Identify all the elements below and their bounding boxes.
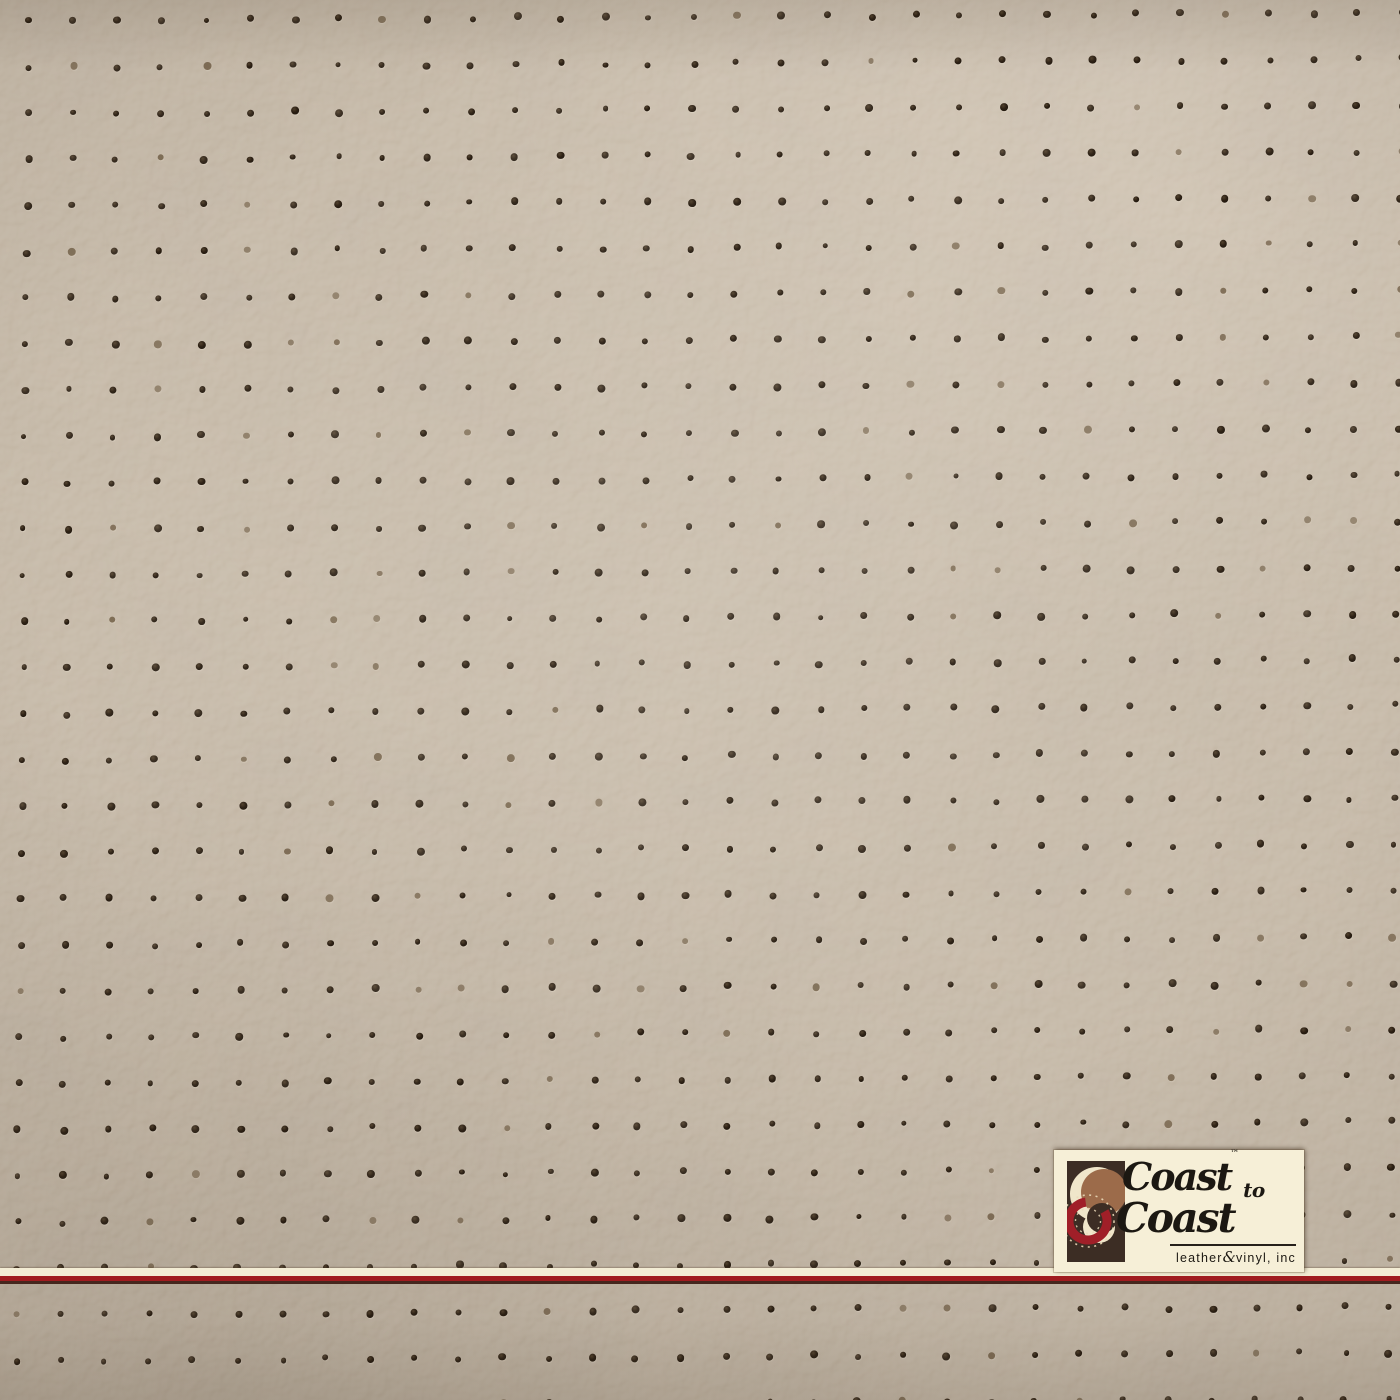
perforation-dot: [593, 985, 601, 993]
perforation-dot: [951, 426, 959, 434]
perforation-dot: [324, 1170, 332, 1178]
perforation-dot: [1124, 983, 1130, 989]
perforation-dot: [824, 150, 830, 156]
perforation-dot: [157, 64, 163, 70]
perforation-dot: [334, 246, 340, 252]
perforation-dot: [688, 199, 695, 206]
perforation-dot: [766, 1353, 773, 1360]
perforation-dot: [468, 109, 475, 116]
perforation-dot: [152, 663, 160, 671]
perforation-dot: [815, 752, 822, 759]
perforation-dot: [16, 1218, 22, 1224]
perforation-dot: [602, 12, 610, 20]
perforation-dot: [411, 1309, 418, 1316]
perforation-dot: [1388, 1027, 1395, 1034]
perforation-dot: [1266, 147, 1274, 155]
perforation-dot: [1038, 703, 1046, 711]
perforation-dot: [188, 1356, 195, 1363]
perforation-dot: [459, 893, 465, 899]
perforation-dot: [823, 200, 829, 206]
perforation-dot: [1039, 474, 1045, 480]
perforation-dot: [20, 710, 27, 717]
perforation-dot: [514, 12, 522, 20]
perforation-dot: [554, 337, 561, 344]
perforation-dot: [283, 707, 290, 714]
perforation-dot: [156, 295, 162, 301]
perforation-dot: [288, 339, 294, 345]
perforation-dot: [236, 1033, 244, 1041]
perforation-dot: [503, 940, 509, 946]
perforation-dot: [456, 1309, 462, 1315]
perforation-dot: [856, 1214, 862, 1220]
perforation-dot: [67, 293, 74, 300]
perforation-dot: [506, 709, 512, 715]
perforation-dot: [677, 1214, 685, 1222]
perforation-dot: [374, 753, 382, 761]
perforation-dot: [989, 1122, 995, 1128]
perforation-dot: [552, 706, 558, 712]
perforation-dot: [1395, 379, 1400, 387]
perforation-dot: [777, 12, 785, 20]
perforation-dot: [557, 16, 565, 24]
perforation-dot: [247, 110, 254, 117]
perforation-dot: [369, 1217, 376, 1224]
perforation-dot: [146, 1171, 153, 1178]
perforation-dot: [332, 292, 339, 299]
perforation-dot: [592, 1077, 599, 1084]
perforation-dot: [1350, 380, 1358, 388]
perforation-dot: [551, 523, 557, 529]
perforation-dot: [58, 1311, 64, 1317]
perforation-dot: [146, 1311, 152, 1317]
perforation-dot: [199, 386, 206, 393]
perforation-dot: [198, 341, 206, 349]
perforation-dot: [691, 61, 698, 68]
perforation-dot: [237, 939, 244, 946]
perforation-dot: [458, 984, 465, 991]
perforation-dot: [774, 383, 782, 391]
perforation-dot: [642, 338, 648, 344]
perforation-dot: [505, 802, 511, 808]
perforation-dot: [678, 1077, 685, 1084]
perforation-dot: [1172, 518, 1179, 525]
perforation-dot: [420, 245, 427, 252]
perforation-dot: [1165, 1306, 1172, 1313]
perforation-dot: [723, 1030, 730, 1037]
perforation-dot: [865, 104, 873, 112]
perforation-dot: [1168, 1074, 1175, 1081]
perforation-dot: [369, 1032, 375, 1038]
perforation-dot: [376, 340, 383, 347]
perforation-dot: [1385, 1304, 1391, 1310]
perforation-dot: [598, 384, 606, 392]
perforation-dot: [237, 986, 244, 993]
perforation-dot: [548, 1168, 554, 1174]
perforation-dot: [1170, 844, 1176, 850]
perforation-dot: [1129, 381, 1135, 387]
perforation-dot: [243, 432, 250, 439]
perforation-dot: [509, 244, 516, 251]
tagline-ampersand: &: [1223, 1248, 1236, 1266]
perforation-dot: [943, 1120, 951, 1128]
perforation-dot: [367, 1170, 375, 1178]
perforation-dot: [1175, 194, 1182, 201]
perforation-dot: [191, 1217, 197, 1223]
perforation-dot: [600, 199, 606, 205]
perforation-dot: [858, 982, 864, 988]
perforation-dot: [25, 17, 31, 23]
perforation-dot: [1175, 240, 1183, 248]
perforation-dot: [196, 894, 203, 901]
perforation-dot: [372, 984, 380, 992]
perforation-dot: [1124, 1026, 1130, 1032]
perforation-dot: [1296, 1348, 1302, 1354]
perforation-dot: [950, 613, 956, 619]
perforation-dot: [731, 568, 738, 575]
perforation-dot: [685, 568, 691, 574]
perforation-dot: [599, 430, 605, 436]
perforation-dot: [636, 939, 643, 946]
perforation-dot: [1267, 58, 1273, 64]
perforation-dot: [598, 478, 605, 485]
perforation-dot: [1254, 1119, 1261, 1126]
perforation-dot: [543, 1308, 551, 1316]
perforation-dot: [953, 473, 959, 479]
perforation-dot: [1042, 336, 1049, 343]
perforation-dot: [1257, 887, 1265, 895]
perforation-dot: [416, 1033, 423, 1040]
perforation-dot: [424, 200, 431, 207]
perforation-dot: [818, 428, 826, 436]
perforation-dot: [147, 1081, 153, 1087]
perforation-dot: [1258, 795, 1264, 801]
perforation-dot: [334, 200, 342, 208]
perforation-dot: [589, 1354, 597, 1362]
perforation-dot: [1129, 612, 1135, 618]
perforation-dot: [771, 800, 778, 807]
perforation-dot: [956, 12, 962, 18]
perforation-dot: [638, 844, 645, 851]
perforation-dot: [60, 1127, 68, 1135]
perforation-dot: [18, 942, 25, 949]
perforation-dot: [810, 1350, 818, 1358]
perforation-dot: [549, 661, 556, 668]
perforation-dot: [952, 381, 959, 388]
perforation-dot: [245, 385, 252, 392]
perforation-dot: [1394, 471, 1400, 477]
perforation-dot: [198, 618, 205, 625]
perforation-dot: [691, 14, 697, 20]
perforation-dot: [70, 155, 77, 162]
perforation-dot: [101, 1359, 107, 1365]
perforation-dot: [734, 244, 741, 251]
perforation-dot: [912, 58, 918, 64]
perforation-dot: [1121, 1303, 1128, 1310]
perforation-dot: [1354, 150, 1360, 156]
perforation-dot: [729, 522, 735, 528]
perforation-dot: [1042, 244, 1048, 250]
perforation-dot: [1037, 795, 1045, 803]
perforation-dot: [987, 1213, 995, 1221]
perforation-dot: [639, 660, 645, 666]
perforation-dot: [816, 937, 823, 944]
perforation-dot: [69, 202, 76, 209]
perforation-dot: [64, 481, 71, 488]
perforation-dot: [1348, 565, 1355, 572]
perforation-dot: [375, 477, 381, 483]
perforation-dot: [238, 849, 244, 855]
perforation-dot: [988, 1353, 995, 1360]
perforation-dot: [148, 988, 154, 994]
perforation-dot: [457, 1078, 464, 1085]
perforation-dot: [244, 202, 250, 208]
perforation-dot: [1311, 56, 1318, 63]
perforation-dot: [1042, 149, 1050, 157]
perforation-dot: [1169, 795, 1176, 802]
perforation-dot: [1045, 57, 1053, 65]
perforation-dot: [196, 847, 203, 854]
perforation-dot: [154, 434, 162, 442]
perforation-dot: [1255, 1024, 1263, 1032]
perforation-dot: [545, 1123, 552, 1130]
perforation-dot: [465, 292, 471, 298]
perforation-dot: [69, 17, 76, 24]
perforation-dot: [59, 1081, 66, 1088]
perforation-dot: [643, 245, 650, 252]
perforation-dot: [1388, 1116, 1395, 1123]
perforation-dot: [1086, 336, 1092, 342]
perforation-dot: [861, 660, 867, 666]
perforation-dot: [463, 615, 470, 622]
perforation-dot: [58, 1357, 64, 1363]
perforation-dot: [1390, 981, 1397, 988]
perforation-dot: [1266, 240, 1272, 246]
perforation-dot: [113, 64, 121, 72]
perforation-dot: [60, 893, 67, 900]
perforation-dot: [1304, 795, 1312, 803]
perforation-dot: [466, 245, 473, 252]
perforation-dot: [1300, 1027, 1307, 1034]
perforation-dot: [240, 711, 246, 717]
perforation-dot: [63, 664, 71, 672]
perforation-dot: [1342, 1258, 1348, 1264]
perforation-dot: [420, 477, 427, 484]
perforation-dot: [954, 288, 961, 295]
perforation-dot: [768, 1029, 774, 1035]
perforation-dot: [724, 1077, 731, 1084]
perforation-dot: [23, 250, 31, 258]
perforation-dot: [67, 248, 75, 256]
perforation-dot: [196, 942, 202, 948]
brand-word-coast-2: Coast: [1116, 1194, 1235, 1242]
perforation-dot: [821, 289, 827, 295]
perforation-dot: [191, 1080, 198, 1087]
perforation-dot: [954, 197, 962, 205]
perforation-dot: [1256, 980, 1262, 986]
perforation-dot: [1263, 335, 1269, 341]
perforation-dot: [1176, 334, 1182, 340]
perforation-dot: [372, 849, 378, 855]
perforation-dot: [815, 661, 823, 669]
perforation-dot: [1169, 979, 1177, 987]
perforation-dot: [22, 294, 28, 300]
perforation-dot: [467, 63, 474, 70]
perforation-dot: [418, 524, 426, 532]
perforation-dot: [237, 1126, 245, 1134]
perforation-dot: [724, 982, 732, 990]
perforation-dot: [948, 843, 956, 851]
perforation-dot: [866, 198, 873, 205]
perforation-dot: [1222, 11, 1229, 18]
perforation-dot: [415, 800, 423, 808]
perforation-dot: [818, 382, 825, 389]
perforation-dot: [899, 1397, 906, 1400]
perforation-dot: [332, 477, 340, 485]
perforation-dot: [290, 154, 296, 160]
perforation-dot: [291, 107, 299, 115]
perforation-dot: [154, 524, 162, 532]
perforation-dot: [1343, 1210, 1351, 1218]
perforation-dot: [460, 845, 467, 852]
perforation-dot: [106, 758, 112, 764]
perforation-dot: [812, 984, 820, 992]
perforation-dot: [21, 665, 27, 671]
perforation-dot: [778, 106, 784, 112]
perforation-dot: [735, 152, 741, 158]
perforation-dot: [688, 105, 696, 113]
perforation-dot: [470, 16, 477, 23]
perforation-dot: [645, 292, 652, 299]
perforation-dot: [554, 384, 561, 391]
perforation-dot: [993, 891, 999, 897]
perforation-dot: [774, 660, 780, 666]
perforation-dot: [1173, 473, 1179, 479]
perforation-dot: [1394, 519, 1400, 526]
perforation-dot: [1308, 101, 1316, 109]
perforation-dot: [191, 1311, 198, 1318]
perforation-dot: [335, 62, 341, 68]
perforation-dot: [288, 431, 294, 437]
perforation-dot: [732, 106, 739, 113]
perforation-dot: [244, 246, 251, 253]
perforation-dot: [1392, 701, 1398, 707]
perforation-dot: [640, 613, 648, 621]
perforation-dot: [62, 758, 69, 765]
perforation-dot: [1259, 611, 1266, 618]
perforation-dot: [459, 1169, 465, 1175]
perforation-dot: [322, 1354, 328, 1360]
perforation-dot: [1036, 936, 1043, 943]
perforation-dot: [1216, 517, 1223, 524]
perforation-dot: [640, 753, 647, 760]
perforation-dot: [412, 1216, 420, 1224]
perforation-dot: [331, 524, 338, 531]
perforation-dot: [1126, 703, 1133, 710]
perforation-dot: [1304, 516, 1311, 523]
perforation-dot: [818, 567, 824, 573]
perforation-dot: [503, 1172, 509, 1178]
perforation-dot: [424, 16, 432, 24]
perforation-dot: [1215, 842, 1222, 849]
perforation-dot: [1391, 748, 1399, 756]
perforation-dot: [419, 383, 426, 390]
perforation-dot: [1303, 702, 1311, 710]
perforation-dot: [507, 662, 514, 669]
perforation-dot: [595, 848, 601, 854]
perforation-dot: [20, 525, 26, 531]
perforation-dot: [733, 59, 739, 65]
perforation-dot: [1034, 1212, 1041, 1219]
perforation-dot: [633, 1122, 641, 1130]
perforation-dot: [418, 661, 425, 668]
perforation-dot: [1261, 471, 1268, 478]
perforation-dot: [22, 478, 29, 485]
perforation-dot: [280, 1310, 287, 1317]
perforation-dot: [1124, 888, 1131, 895]
perforation-dot: [682, 1029, 688, 1035]
perforation-dot: [1089, 56, 1097, 64]
perforation-dot: [197, 431, 205, 439]
perforation-dot: [195, 709, 203, 717]
perforation-dot: [1345, 932, 1352, 939]
perforation-dot: [634, 1170, 640, 1176]
perforation-dot: [22, 341, 28, 347]
perforation-dot: [727, 797, 734, 804]
perforation-dot: [371, 800, 379, 808]
perforation-dot: [152, 847, 159, 854]
perforation-dot: [865, 245, 871, 251]
perforation-dot: [498, 1353, 505, 1360]
perforation-dot: [945, 1029, 952, 1036]
perforation-dot: [373, 615, 380, 622]
perforation-dot: [1121, 1351, 1128, 1358]
perforation-dot: [288, 293, 295, 300]
perforation-dot: [1126, 566, 1134, 574]
perforation-dot: [326, 986, 334, 994]
perforation-dot: [421, 291, 428, 298]
perforation-dot: [204, 110, 210, 116]
perforation-dot: [1173, 379, 1180, 386]
perforation-dot: [1127, 474, 1135, 482]
perforation-dot: [203, 18, 209, 24]
perforation-dot: [818, 707, 825, 714]
perforation-dot: [284, 848, 290, 854]
perforation-dot: [819, 475, 826, 482]
perforation-dot: [950, 521, 958, 529]
perforation-dot: [109, 616, 115, 622]
perforation-dot: [112, 202, 118, 208]
perforation-dot: [1080, 1119, 1086, 1125]
perforation-dot: [287, 386, 293, 392]
perforation-dot: [902, 936, 908, 942]
perforation-dot: [239, 802, 247, 810]
perforation-dot: [152, 616, 158, 622]
perforation-dot: [195, 755, 201, 761]
perforation-dot: [1389, 1213, 1395, 1219]
perforation-dot: [723, 1123, 730, 1130]
perforation-dot: [1259, 749, 1266, 756]
perforation-dot: [1129, 519, 1137, 527]
perforation-dot: [158, 154, 164, 160]
perforation-dot: [1040, 518, 1046, 524]
perforation-dot: [152, 711, 158, 717]
perforation-dot: [1172, 426, 1178, 432]
perforation-dot: [1175, 288, 1182, 295]
perforation-dot: [854, 1304, 861, 1311]
perforation-dot: [322, 1216, 329, 1223]
perforation-dot: [765, 1215, 773, 1223]
perforation-dot: [1307, 378, 1314, 385]
